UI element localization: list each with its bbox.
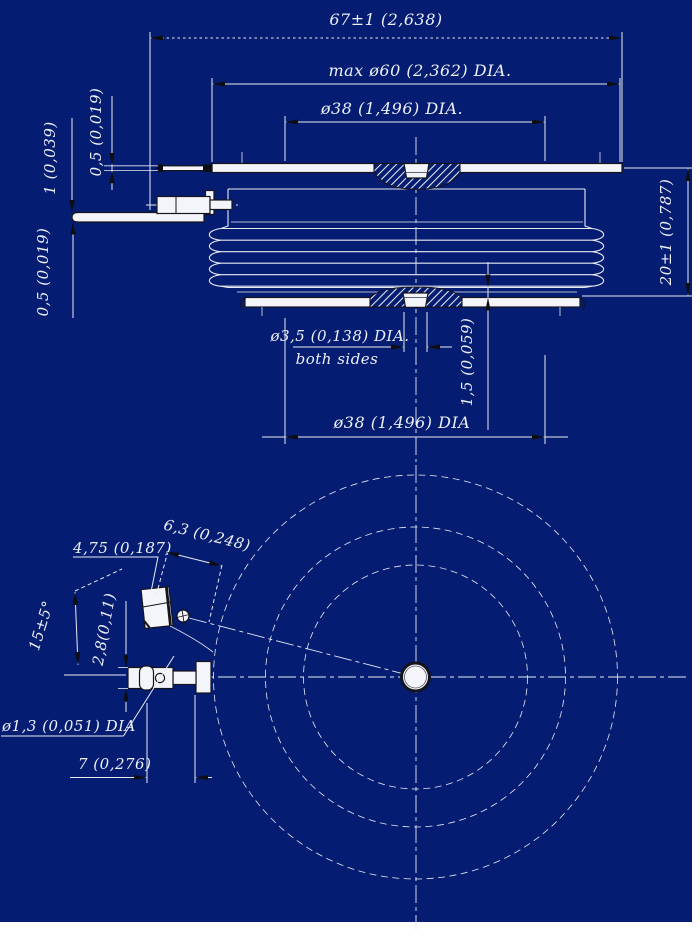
dim-height-label: 20±1 (0,787) <box>657 179 675 287</box>
connector-flange <box>196 662 211 694</box>
top-locating-recess <box>404 164 429 179</box>
dim-boss-height-label: 1,5 (0,059) <box>458 318 476 407</box>
dim-pole-dia-top-label: ø38 (1,496) DIA. <box>320 99 463 118</box>
dim-gate-hole-note-label: both sides <box>296 350 379 368</box>
dim-hole-offset-label: 7 (0,276) <box>78 755 151 773</box>
connector-crimp-cap <box>140 666 154 690</box>
dim-pole-dia-bottom-label: ø38 (1,496) DIA <box>333 413 471 432</box>
dim-overall-width-label: 67±1 (2,638) <box>329 10 442 29</box>
gate-connector-stem <box>210 200 232 210</box>
dim-gate-hole-dia-label: ø3,5 (0,138) DIA. <box>269 327 409 345</box>
dim-lead-thickness-top-label: 0,5 (0,019) <box>87 88 105 177</box>
gate-connector-body <box>157 197 210 214</box>
dim-max-diameter-label: max ø60 (2,362) DIA. <box>328 61 511 80</box>
dim-lead-thickness-mid-label: 1 (0,039) <box>41 121 59 194</box>
dim-tab-width-label: 4,75 (0,187) <box>72 539 172 557</box>
bottom-locating-recess <box>403 293 428 307</box>
dim-wire-hole-dia-label: ø1,3 (0,051) DIA <box>1 717 136 735</box>
engineering-drawing-page: 67±1 (2,638) max ø60 (2,362) DIA. ø38 (1… <box>0 0 700 940</box>
connector-neck <box>173 671 196 685</box>
dim-lead-thickness-bottom-label: 0,5 (0,019) <box>34 228 52 317</box>
thyristor-outline-drawing: 67±1 (2,638) max ø60 (2,362) DIA. ø38 (1… <box>0 0 700 940</box>
center-locating-hole <box>402 663 430 691</box>
lead-crimp-mark-right <box>203 164 212 172</box>
